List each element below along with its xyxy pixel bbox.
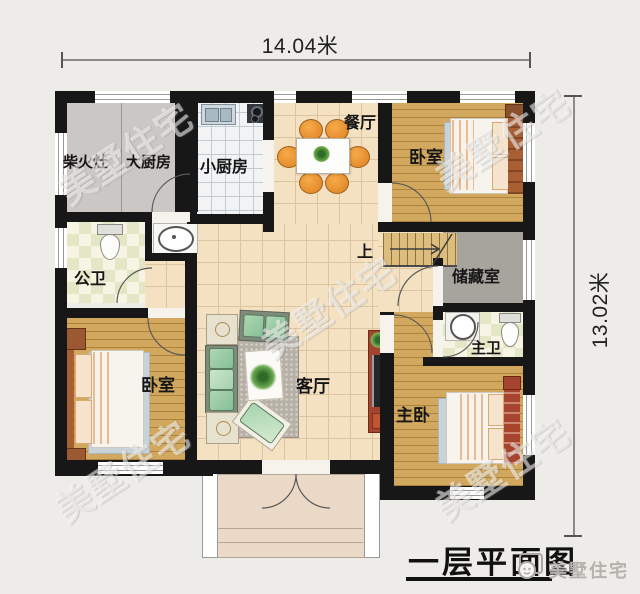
nightstand bbox=[505, 104, 524, 118]
window-right-storage bbox=[523, 240, 535, 300]
door-gap-bedroom-top bbox=[378, 183, 392, 222]
wall-small-kitchen-right-b bbox=[263, 192, 274, 232]
sofa-cushion bbox=[242, 314, 264, 338]
sink-bowl bbox=[205, 108, 219, 122]
sofa-cushion bbox=[209, 348, 234, 369]
dining-chair bbox=[299, 172, 323, 194]
wall-bedroom-top-bottom bbox=[378, 222, 535, 232]
porch-platform bbox=[216, 474, 366, 558]
dimension-tick bbox=[529, 52, 531, 68]
brand-logo-icon bbox=[516, 551, 546, 581]
stairs bbox=[383, 233, 457, 267]
dimension-line-right bbox=[573, 96, 575, 536]
window-right-master bbox=[523, 395, 535, 455]
loveseat bbox=[238, 310, 290, 344]
wall-step-vertical bbox=[380, 460, 394, 500]
sofa bbox=[205, 345, 238, 413]
window-top-kitchen bbox=[95, 91, 170, 103]
room-label-living: 客厅 bbox=[296, 372, 330, 397]
door-gap-storage bbox=[433, 266, 443, 306]
wall-small-kitchen-right-a bbox=[263, 103, 274, 140]
side-table-deco bbox=[216, 421, 231, 436]
room-label-small-kitchen: 小厨房 bbox=[200, 153, 248, 177]
window-top-bedroom bbox=[460, 91, 515, 103]
dining-table-plant bbox=[313, 146, 330, 162]
sofa-cushion bbox=[209, 390, 234, 411]
bed-blanket bbox=[452, 120, 474, 190]
kitchen-sink-unit bbox=[201, 104, 236, 125]
bed-headboard bbox=[504, 390, 520, 464]
door-gap-bedroom-left bbox=[148, 308, 185, 318]
porch-pilaster bbox=[364, 468, 380, 558]
sofa-cushion bbox=[264, 315, 286, 339]
wall-small-kitchen-bottom bbox=[187, 214, 263, 224]
window-top-dining bbox=[352, 91, 407, 103]
sink-drainer bbox=[220, 108, 232, 122]
room-label-bedroom-left: 卧室 bbox=[141, 371, 175, 396]
sofa-cushion bbox=[209, 369, 234, 390]
nightstand bbox=[503, 376, 521, 390]
bed-pillow bbox=[488, 394, 504, 426]
room-label-master-bedroom: 主卧 bbox=[396, 401, 430, 426]
porch-step-line bbox=[217, 542, 363, 543]
wall-kitchen-split bbox=[175, 103, 198, 212]
dimension-height-label: 13.02米 bbox=[584, 272, 614, 349]
window-right-bedroom bbox=[523, 123, 535, 182]
bed-pillow bbox=[492, 157, 509, 190]
door-gap-master-bedroom bbox=[380, 315, 394, 353]
window-top-dining-west bbox=[274, 91, 296, 103]
kitchen-stove bbox=[247, 104, 263, 123]
side-table bbox=[206, 314, 238, 345]
room-label-master-bath: 主卫 bbox=[471, 337, 501, 358]
bed-pillow bbox=[75, 354, 92, 398]
stove-burner bbox=[251, 115, 259, 123]
wall-bedroom-left-right bbox=[185, 253, 197, 460]
window-left-bathroom bbox=[55, 228, 67, 268]
room-label-firewood-stove: 柴火灶 bbox=[63, 151, 108, 172]
porch-step-line bbox=[217, 528, 363, 529]
bed-blanket bbox=[460, 394, 484, 460]
room-label-bedroom-top: 卧室 bbox=[409, 143, 443, 168]
coffee-table-plant bbox=[249, 364, 277, 390]
dimension-tick bbox=[61, 52, 63, 68]
window-bottom-master bbox=[450, 487, 484, 499]
bed-headboard bbox=[508, 116, 523, 194]
door-gap-master-bath bbox=[433, 320, 443, 357]
washbasin-drain bbox=[172, 235, 176, 239]
dining-chair bbox=[325, 172, 349, 194]
floor-plan-canvas: 柴火灶 大厨房 小厨房 餐厅 卧室 公卫 上 储藏室 客厅 卧室 主卫 主卧 1… bbox=[0, 0, 640, 594]
bed-blanket bbox=[93, 352, 113, 444]
wall-dining-bedroom bbox=[378, 103, 392, 183]
kitchen-divider-line bbox=[121, 103, 122, 212]
porch-pilaster bbox=[202, 468, 218, 558]
washbasin bbox=[158, 226, 194, 252]
side-table-deco bbox=[215, 322, 230, 337]
bed-pillow bbox=[75, 400, 92, 444]
bed-pillow bbox=[492, 122, 509, 155]
room-label-public-bath: 公卫 bbox=[74, 265, 106, 289]
dimension-tick bbox=[564, 95, 582, 97]
room-label-dining: 餐厅 bbox=[344, 109, 376, 133]
window-bottom-bedroom-left bbox=[98, 462, 163, 474]
room-label-big-kitchen: 大厨房 bbox=[126, 151, 171, 172]
room-label-stairs-up: 上 bbox=[357, 238, 373, 262]
room-label-storage: 储藏室 bbox=[452, 263, 500, 287]
wall-master-bath-bottom bbox=[423, 357, 535, 366]
wall-storage-bottom bbox=[433, 303, 535, 312]
dimension-width-label: 14.04米 bbox=[230, 30, 370, 60]
door-gap-small-kitchen bbox=[263, 140, 274, 192]
brand-name: 美墅住宅 bbox=[549, 557, 629, 583]
door-gap-big-kitchen bbox=[152, 212, 190, 222]
door-gap-front-entry bbox=[262, 460, 330, 474]
bed-pillow bbox=[488, 428, 504, 460]
